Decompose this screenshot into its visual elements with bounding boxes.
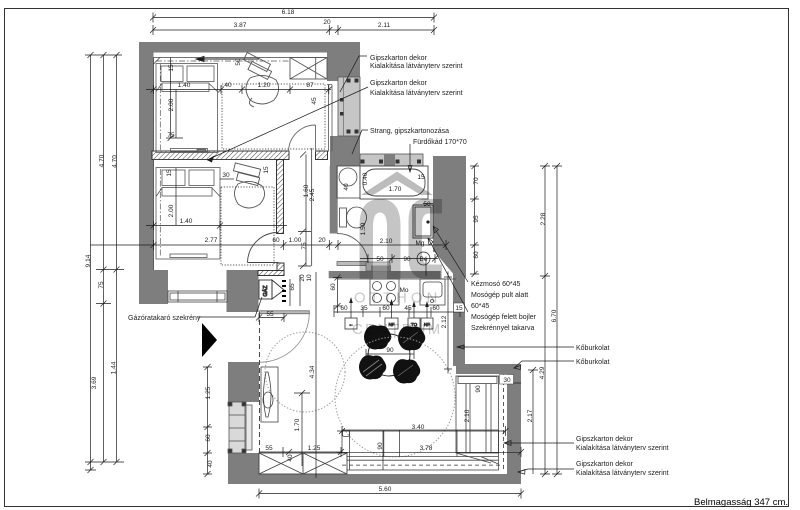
svg-text:Gipszkarton dekor: Gipszkarton dekor bbox=[576, 461, 633, 468]
svg-text:CENTRUM: CENTRUM bbox=[352, 321, 442, 338]
svg-text:1.40: 1.40 bbox=[178, 82, 191, 89]
svg-text:1.40: 1.40 bbox=[180, 218, 193, 225]
svg-text:75: 75 bbox=[167, 132, 175, 139]
svg-text:9.14: 9.14 bbox=[85, 254, 92, 267]
svg-text:Strang, gipszkartonozása: Strang, gipszkartonozása bbox=[370, 128, 449, 135]
svg-text:20: 20 bbox=[299, 274, 306, 282]
svg-text:15: 15 bbox=[417, 174, 425, 181]
svg-text:Mosógép felett bojler: Mosógép felett bojler bbox=[471, 314, 537, 321]
svg-text:87: 87 bbox=[306, 82, 314, 89]
svg-text:2.45: 2.45 bbox=[309, 188, 316, 201]
svg-text:30: 30 bbox=[222, 172, 230, 179]
svg-text:10: 10 bbox=[306, 274, 313, 282]
svg-text:Szekrénnyel takarva: Szekrénnyel takarva bbox=[471, 325, 535, 332]
svg-text:Gipszkarton dekor: Gipszkarton dekor bbox=[576, 436, 633, 443]
svg-text:Gipszkarton dekor: Gipszkarton dekor bbox=[370, 55, 427, 62]
svg-text:45: 45 bbox=[311, 97, 318, 105]
svg-text:15: 15 bbox=[168, 64, 175, 72]
svg-text:2.00: 2.00 bbox=[168, 204, 175, 217]
svg-text:75: 75 bbox=[98, 281, 105, 289]
svg-text:40: 40 bbox=[224, 82, 232, 89]
svg-text:60: 60 bbox=[473, 251, 480, 259]
svg-text:Gipszkarton dekor: Gipszkarton dekor bbox=[370, 80, 427, 87]
svg-text:1.00: 1.00 bbox=[289, 237, 302, 244]
svg-text:1.20: 1.20 bbox=[258, 82, 271, 89]
svg-text:Belmagasság 347 cm.: Belmagasság 347 cm. bbox=[694, 497, 788, 508]
svg-text:GÁZ: GÁZ bbox=[262, 285, 269, 297]
svg-text:2.17: 2.17 bbox=[527, 409, 534, 422]
svg-text:15: 15 bbox=[166, 169, 173, 177]
svg-text:75: 75 bbox=[301, 242, 308, 250]
svg-text:1.25: 1.25 bbox=[205, 386, 212, 399]
svg-text:55: 55 bbox=[265, 445, 273, 452]
svg-text:90: 90 bbox=[475, 385, 482, 393]
svg-text:30: 30 bbox=[503, 377, 511, 384]
svg-text:Mosógép pult alatt: Mosógép pult alatt bbox=[471, 292, 528, 299]
svg-text:2.10: 2.10 bbox=[464, 409, 471, 422]
svg-text:90: 90 bbox=[377, 442, 384, 450]
svg-text:15: 15 bbox=[455, 305, 463, 312]
svg-text:95: 95 bbox=[473, 215, 480, 223]
svg-text:2.28: 2.28 bbox=[540, 212, 547, 225]
svg-text:3.78: 3.78 bbox=[420, 445, 433, 452]
svg-text:4.34: 4.34 bbox=[309, 365, 316, 378]
svg-text:Fürdőkád 170*70: Fürdőkád 170*70 bbox=[413, 139, 467, 146]
svg-text:60: 60 bbox=[272, 237, 280, 244]
svg-text:15: 15 bbox=[263, 166, 270, 174]
svg-text:20: 20 bbox=[323, 19, 331, 26]
svg-text:1.70: 1.70 bbox=[389, 186, 402, 193]
svg-text:40: 40 bbox=[287, 454, 294, 462]
svg-text:90: 90 bbox=[386, 347, 394, 354]
svg-text:55: 55 bbox=[266, 311, 274, 318]
svg-text:6.18: 6.18 bbox=[282, 9, 295, 16]
svg-text:1.25: 1.25 bbox=[308, 445, 321, 452]
svg-text:5.60: 5.60 bbox=[379, 486, 392, 493]
svg-text:2.11: 2.11 bbox=[378, 22, 391, 29]
svg-text:Kialakítása látványterv szerin: Kialakítása látványterv szerint bbox=[370, 90, 463, 97]
svg-text:70: 70 bbox=[473, 177, 480, 185]
svg-text:0.40: 0.40 bbox=[362, 172, 369, 185]
svg-text:Kialakítása látványterv szerin: Kialakítása látványterv szerint bbox=[576, 470, 669, 477]
svg-text:OTTHON: OTTHON bbox=[354, 290, 441, 307]
svg-text:40: 40 bbox=[343, 183, 350, 191]
svg-text:2.00: 2.00 bbox=[168, 98, 175, 111]
svg-text:60: 60 bbox=[340, 305, 348, 312]
svg-text:Kézmosó 60*45: Kézmosó 60*45 bbox=[471, 281, 521, 288]
svg-text:3.87: 3.87 bbox=[234, 22, 247, 29]
svg-text:3.69: 3.69 bbox=[91, 376, 98, 389]
svg-text:2.77: 2.77 bbox=[205, 237, 218, 244]
svg-text:Kialakítása látványterv szerin: Kialakítása látványterv szerint bbox=[370, 63, 463, 70]
svg-text:40: 40 bbox=[207, 460, 214, 468]
svg-text:3.40: 3.40 bbox=[412, 424, 425, 431]
svg-text:60: 60 bbox=[205, 434, 212, 442]
svg-text:4.70: 4.70 bbox=[99, 154, 106, 167]
svg-text:Kialakítása látványterv szerin: Kialakítása látványterv szerint bbox=[576, 445, 669, 452]
svg-text:50: 50 bbox=[235, 58, 242, 66]
svg-text:65: 65 bbox=[289, 283, 296, 291]
svg-text:4.29: 4.29 bbox=[539, 366, 546, 379]
svg-text:50: 50 bbox=[376, 256, 384, 263]
svg-text:6.70: 6.70 bbox=[551, 309, 558, 322]
svg-text:20: 20 bbox=[318, 237, 326, 244]
svg-text:Kőburkolat: Kőburkolat bbox=[576, 359, 610, 366]
svg-text:60: 60 bbox=[330, 283, 337, 291]
svg-text:Kőburkolat: Kőburkolat bbox=[576, 345, 610, 352]
svg-text:1.44: 1.44 bbox=[111, 361, 118, 374]
svg-text:4.70: 4.70 bbox=[112, 155, 119, 168]
svg-text:60*45: 60*45 bbox=[471, 303, 489, 310]
svg-text:1.70: 1.70 bbox=[294, 418, 301, 431]
svg-text:Gázóratakaró szekrény: Gázóratakaró szekrény bbox=[128, 315, 201, 322]
